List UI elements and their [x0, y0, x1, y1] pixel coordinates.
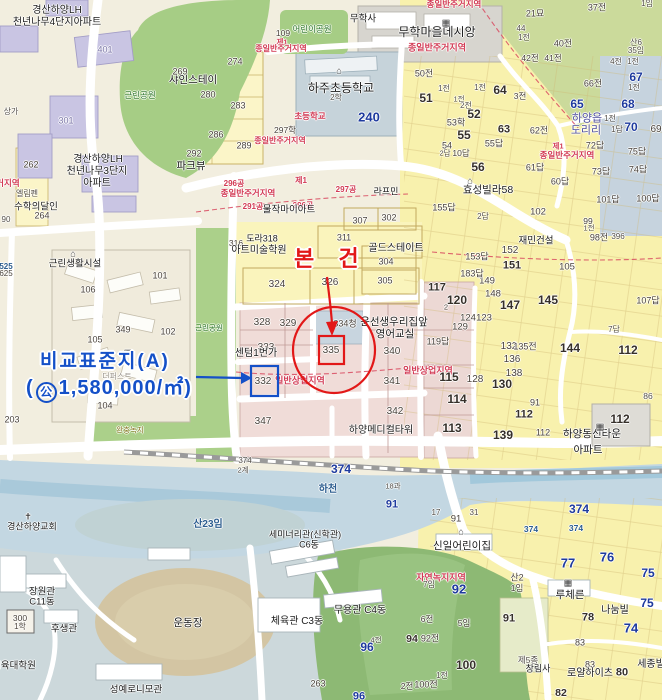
map-annotation-layer — [0, 0, 662, 700]
comparison-annotation-label: 비교표준지(A) — [40, 352, 170, 371]
subject-circle-annotation — [293, 307, 375, 393]
price-value: 1,580,000/㎡ — [59, 377, 185, 399]
comparison-arrow-line — [196, 377, 242, 378]
comparison-parcel-outline — [251, 366, 278, 396]
comparison-annotation-price: (公1,580,000/㎡) — [26, 378, 192, 403]
subject-parcel-outline — [319, 336, 344, 364]
price-paren-open: ( — [26, 377, 34, 399]
subject-arrow-head — [326, 321, 338, 336]
cadastral-map: 경산하양LH천년나무4단지아파트401상가301경산하양LH천년나무3단지아파트… — [0, 0, 662, 700]
subject-arrow-line — [327, 277, 332, 324]
official-price-symbol: 公 — [36, 382, 57, 403]
price-paren-close: ) — [184, 377, 192, 399]
subject-annotation-label: 본 건 — [294, 248, 368, 270]
